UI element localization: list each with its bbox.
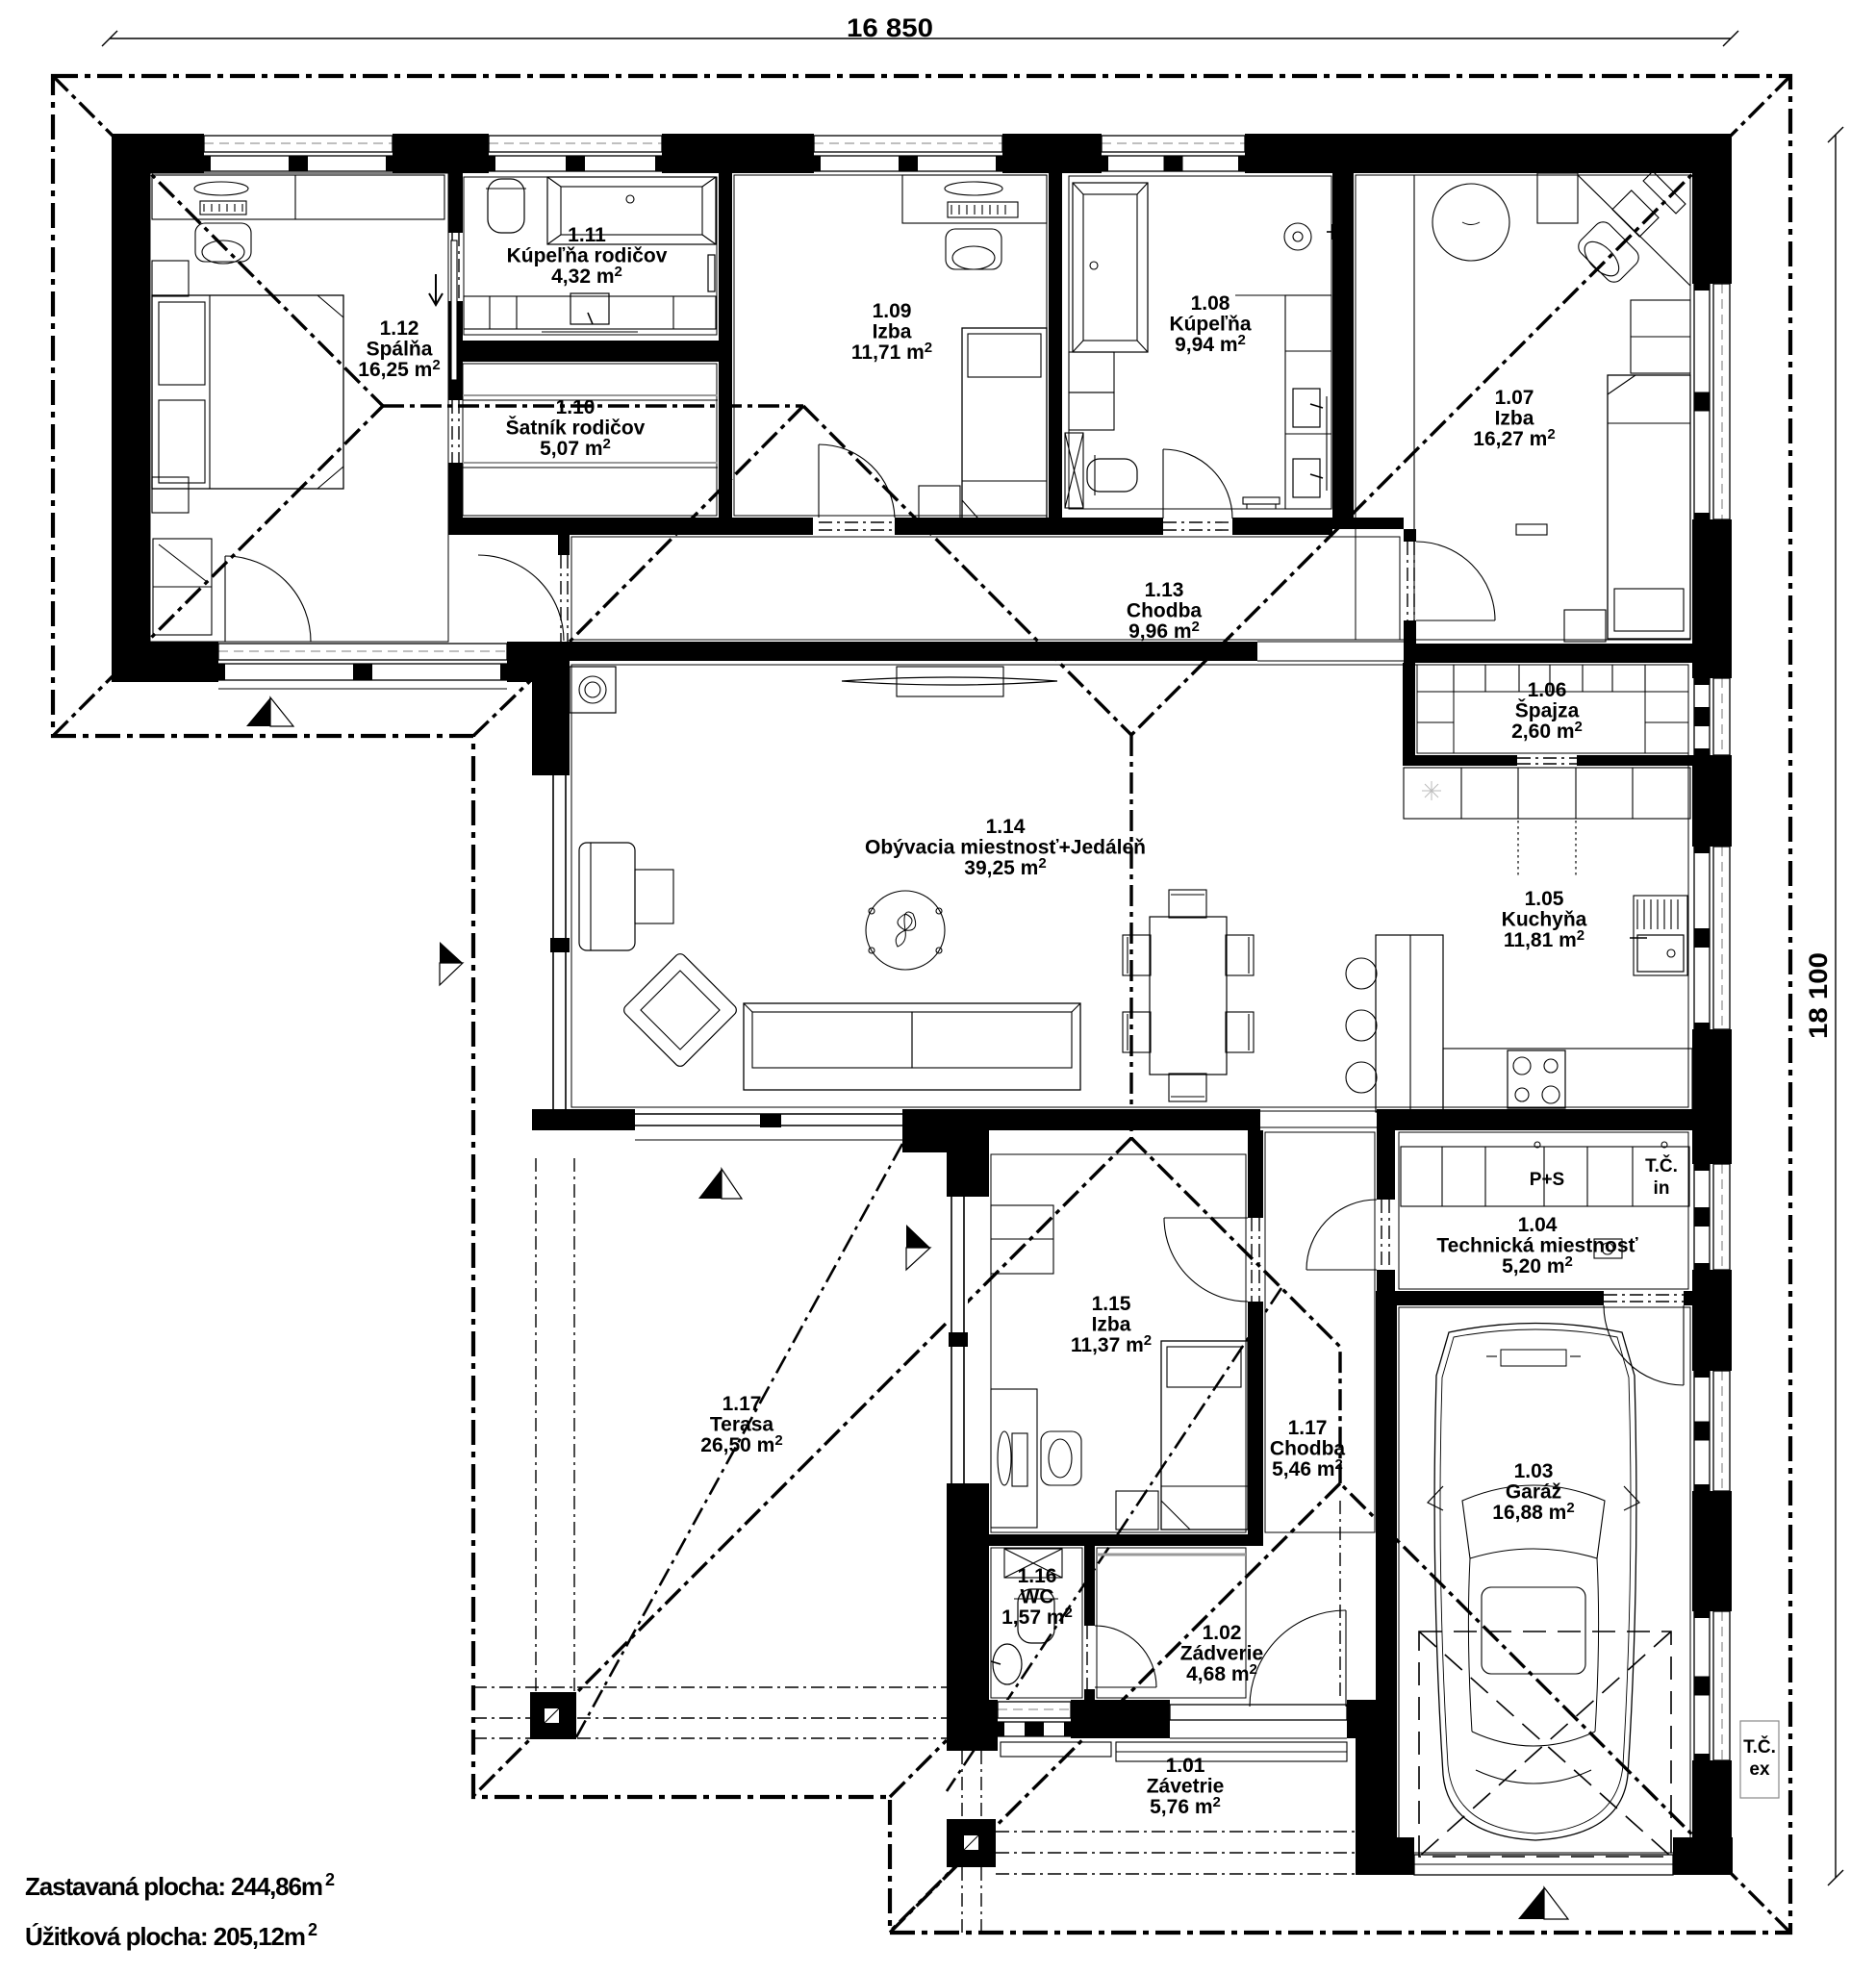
svg-text:4,68 m2: 4,68 m2 xyxy=(1186,1661,1257,1685)
svg-text:1.10: 1.10 xyxy=(556,396,596,418)
svg-text:16,25 m2: 16,25 m2 xyxy=(358,357,440,381)
svg-text:16,88 m2: 16,88 m2 xyxy=(1492,1500,1574,1524)
svg-text:5,46 m2: 5,46 m2 xyxy=(1272,1456,1343,1480)
svg-text:Izba: Izba xyxy=(1092,1314,1131,1336)
svg-text:Šatník rodičov: Šatník rodičov xyxy=(506,417,646,440)
svg-text:1.03: 1.03 xyxy=(1514,1460,1554,1482)
svg-text:1.02: 1.02 xyxy=(1203,1622,1242,1644)
svg-text:11,81 m2: 11,81 m2 xyxy=(1504,927,1584,951)
svg-text:ex: ex xyxy=(1749,1759,1770,1780)
svg-text:Kúpeľňa rodičov: Kúpeľňa rodičov xyxy=(507,245,668,267)
svg-text:9,94 m2: 9,94 m2 xyxy=(1175,332,1246,356)
svg-text:4,32 m2: 4,32 m2 xyxy=(551,264,622,288)
svg-text:1.06: 1.06 xyxy=(1528,679,1567,701)
svg-text:Garáž: Garáž xyxy=(1506,1481,1561,1504)
svg-text:1.11: 1.11 xyxy=(568,224,606,246)
svg-text:1.17: 1.17 xyxy=(1288,1417,1328,1439)
svg-text:1.17: 1.17 xyxy=(723,1393,762,1415)
svg-text:2,60 m2: 2,60 m2 xyxy=(1511,719,1583,743)
svg-text:11,71 m2: 11,71 m2 xyxy=(851,340,932,364)
svg-text:16 850: 16 850 xyxy=(847,13,933,42)
svg-text:2: 2 xyxy=(325,1870,335,1889)
svg-text:11,37 m2: 11,37 m2 xyxy=(1071,1332,1152,1356)
svg-text:2: 2 xyxy=(308,1920,317,1939)
svg-text:1.12: 1.12 xyxy=(380,317,419,340)
svg-text:26,50 m2: 26,50 m2 xyxy=(700,1432,782,1456)
svg-text:1.14: 1.14 xyxy=(986,816,1026,838)
svg-text:39,25 m2: 39,25 m2 xyxy=(964,855,1046,879)
svg-text:Špajza: Špajza xyxy=(1515,699,1580,722)
svg-text:5,76 m2: 5,76 m2 xyxy=(1150,1794,1221,1818)
svg-text:1.15: 1.15 xyxy=(1092,1293,1131,1315)
svg-text:P+S: P+S xyxy=(1530,1170,1564,1190)
svg-text:1.16: 1.16 xyxy=(1018,1565,1057,1587)
svg-text:1.07: 1.07 xyxy=(1495,387,1534,409)
svg-text:5,07 m2: 5,07 m2 xyxy=(540,436,611,460)
svg-text:1,57 m2: 1,57 m2 xyxy=(1001,1605,1073,1629)
svg-text:1.13: 1.13 xyxy=(1145,579,1184,601)
svg-text:1.04: 1.04 xyxy=(1518,1214,1558,1236)
svg-text:1.01: 1.01 xyxy=(1166,1755,1205,1777)
svg-text:9,96 m2: 9,96 m2 xyxy=(1128,619,1200,643)
svg-text:Izba: Izba xyxy=(873,321,912,343)
svg-text:Izba: Izba xyxy=(1495,408,1534,430)
svg-text:in: in xyxy=(1654,1178,1670,1199)
svg-text:Obývacia miestnosť+Jedáleň: Obývacia miestnosť+Jedáleň xyxy=(865,837,1146,859)
svg-text:Terasa: Terasa xyxy=(710,1414,773,1436)
svg-text:Spálňa: Spálňa xyxy=(367,339,433,361)
svg-text:Úžitková plocha: 205,12m: Úžitková plocha: 205,12m xyxy=(25,1922,306,1951)
svg-text:1.05: 1.05 xyxy=(1525,888,1564,910)
svg-text:1.09: 1.09 xyxy=(873,300,912,322)
svg-text:18 100: 18 100 xyxy=(1804,952,1833,1039)
svg-text:Technická miestnosť: Technická miestnosť xyxy=(1436,1235,1638,1257)
svg-text:Kuchyňa: Kuchyňa xyxy=(1502,909,1587,931)
svg-text:WC: WC xyxy=(1021,1586,1054,1608)
svg-text:T.Č.: T.Č. xyxy=(1743,1736,1776,1758)
svg-text:Zastavaná plocha: 244,86m: Zastavaná plocha: 244,86m xyxy=(25,1872,323,1901)
svg-text:5,20 m2: 5,20 m2 xyxy=(1502,1253,1573,1277)
svg-text:1.08: 1.08 xyxy=(1191,292,1230,315)
svg-text:16,27 m2: 16,27 m2 xyxy=(1473,426,1555,450)
svg-text:T.Č.: T.Č. xyxy=(1645,1155,1678,1176)
